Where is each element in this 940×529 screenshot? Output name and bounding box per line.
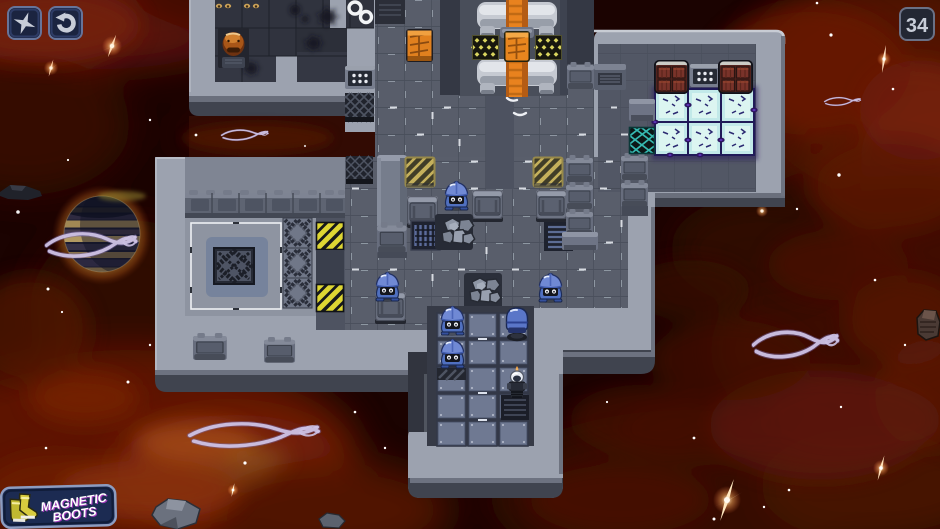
- svg-text:34: 34: [906, 15, 929, 37]
